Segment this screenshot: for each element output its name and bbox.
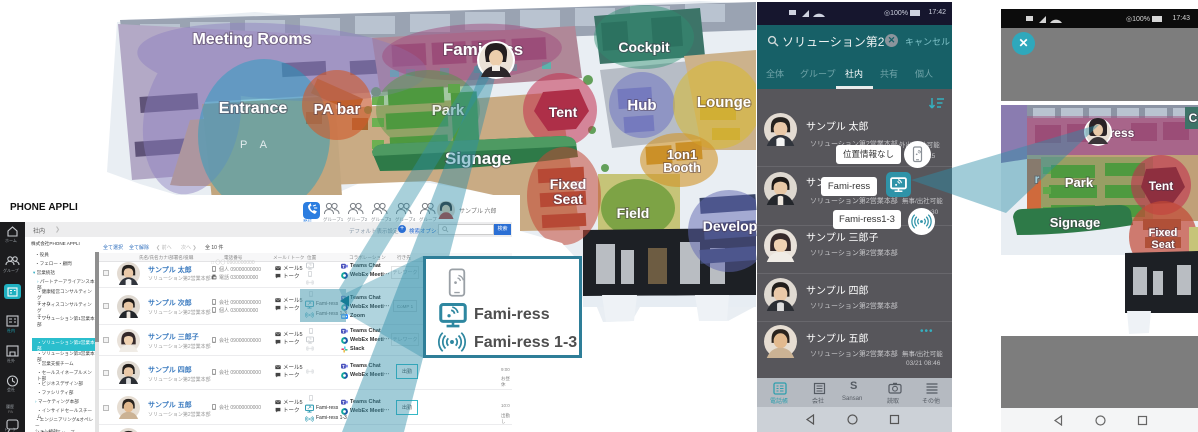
svg-text:Seat: Seat: [1151, 239, 1175, 251]
svg-text:Park: Park: [1065, 175, 1094, 190]
svg-text:C: C: [1189, 111, 1198, 125]
svg-text:ress: ress: [1110, 126, 1135, 140]
svg-text:Tent: Tent: [1149, 179, 1173, 193]
svg-text:Signage: Signage: [1050, 215, 1101, 230]
svg-text:r: r: [1035, 172, 1040, 186]
svg-text:Fixed: Fixed: [1149, 227, 1178, 239]
